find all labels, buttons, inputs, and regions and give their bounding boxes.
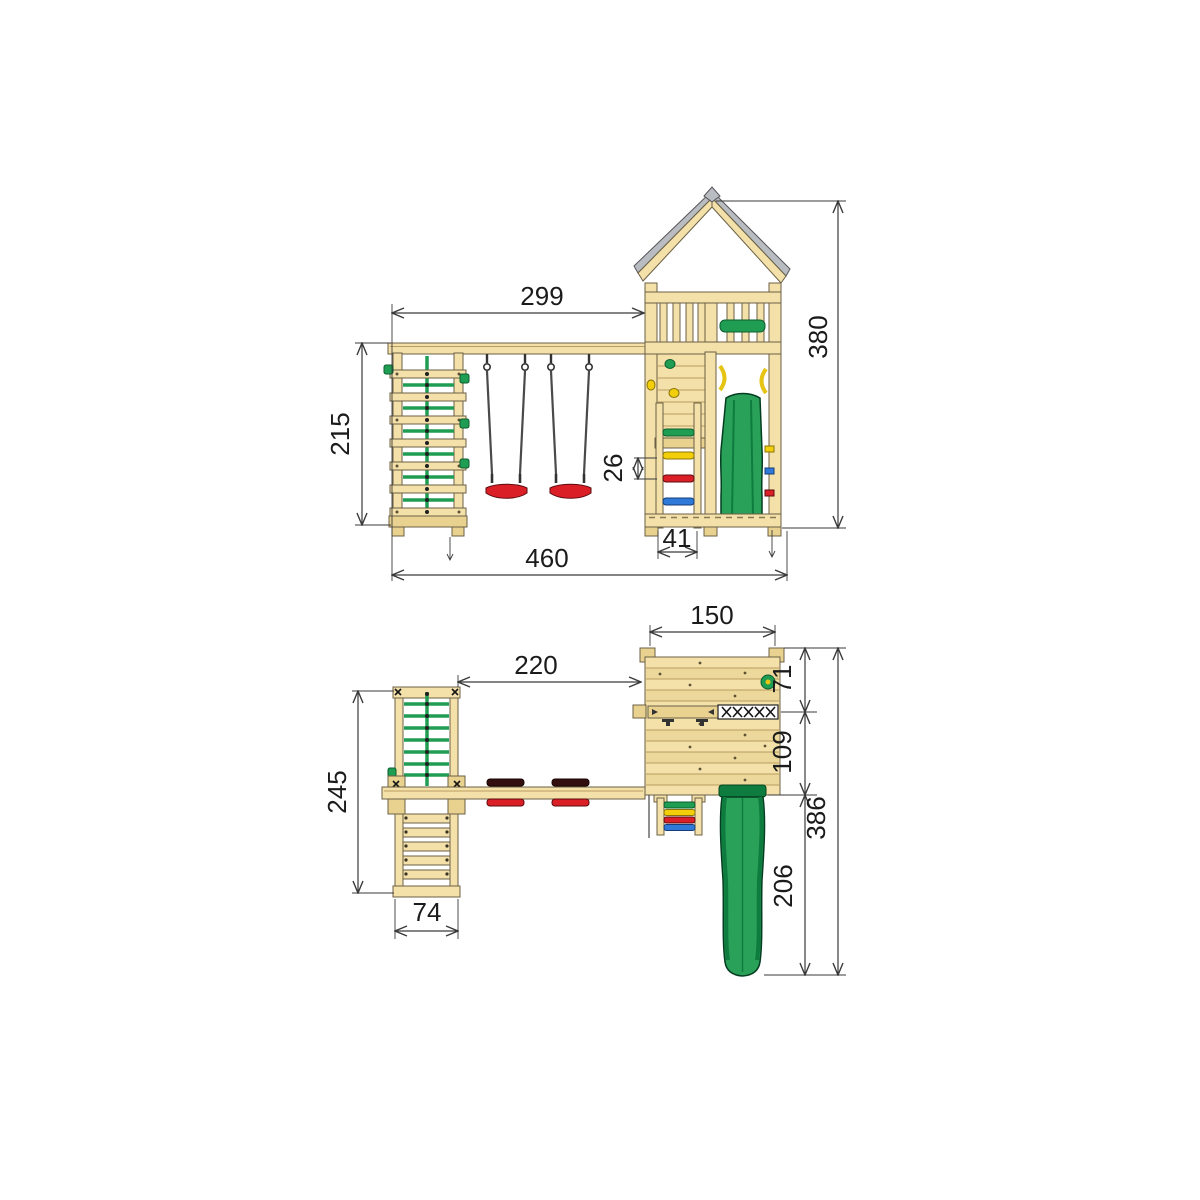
dim-label-460: 460 bbox=[525, 543, 568, 573]
swing-seat-plan bbox=[552, 799, 589, 806]
tower-post bbox=[645, 283, 657, 528]
entry-handle bbox=[720, 366, 725, 390]
swing-beam-plan bbox=[382, 779, 645, 806]
swing-seat bbox=[486, 484, 527, 498]
dim-label-74: 74 bbox=[413, 897, 442, 927]
ladder-rung-yellow bbox=[663, 452, 694, 459]
playset-dimension-diagram: 299 460 215 380 26 41 bbox=[0, 0, 1200, 1200]
rear-rung-mark bbox=[765, 490, 774, 496]
plan-view: 150 220 245 74 71 109 206 386 bbox=[322, 600, 846, 976]
swing-set-side bbox=[484, 354, 592, 498]
net-hook bbox=[460, 419, 469, 428]
diagram-canvas: 299 460 215 380 26 41 bbox=[0, 0, 1200, 1200]
slide-side bbox=[721, 394, 763, 523]
tower-mid-post bbox=[705, 352, 716, 528]
dim-label-215: 215 bbox=[325, 412, 355, 455]
access-ladder-plan bbox=[649, 795, 705, 838]
ladder-rung-blue bbox=[663, 498, 694, 505]
dim-label-150: 150 bbox=[690, 600, 733, 630]
play-tower-side bbox=[634, 187, 790, 557]
ladder-rung-green bbox=[663, 429, 694, 436]
dim-label-109: 109 bbox=[767, 730, 797, 773]
climbing-hold bbox=[669, 389, 679, 398]
dim-label-299: 299 bbox=[520, 281, 563, 311]
dim-label-71: 71 bbox=[767, 665, 797, 694]
dim-label-26: 26 bbox=[598, 454, 628, 483]
swing-seat bbox=[550, 484, 591, 498]
slide-plan bbox=[719, 785, 766, 976]
swing-seat-plan bbox=[487, 799, 524, 806]
climbing-hold bbox=[665, 360, 675, 369]
dim-label-206: 206 bbox=[768, 864, 798, 907]
swing-seat-plan bbox=[487, 779, 524, 786]
dim-label-386: 386 bbox=[801, 796, 831, 839]
rope-lattice-plan bbox=[718, 705, 778, 719]
ladder-rung-red bbox=[663, 475, 694, 482]
slide-collar bbox=[719, 785, 766, 797]
frame-ladder-plan bbox=[403, 814, 450, 879]
entry-handle bbox=[762, 369, 767, 393]
green-grab-bar bbox=[720, 320, 765, 332]
side-bracket bbox=[633, 705, 646, 718]
swing-beam bbox=[388, 343, 648, 354]
dim-label-41: 41 bbox=[663, 523, 692, 553]
rear-rung-mark bbox=[765, 468, 774, 474]
climbing-frame-side bbox=[384, 353, 469, 560]
divider-bar bbox=[648, 706, 718, 718]
dim-label-380: 380 bbox=[803, 315, 833, 358]
tower-plan bbox=[633, 648, 784, 795]
net-hook bbox=[460, 459, 469, 468]
rear-rung-mark bbox=[765, 446, 774, 452]
climbing-hold bbox=[647, 380, 655, 390]
net-hook bbox=[460, 374, 469, 383]
hanger-rings bbox=[484, 364, 592, 370]
side-view: 299 460 215 380 26 41 bbox=[325, 187, 846, 581]
dim-label-220: 220 bbox=[514, 650, 557, 680]
dim-label-245: 245 bbox=[322, 770, 352, 813]
swing-ropes bbox=[487, 371, 589, 474]
swing-seat-plan bbox=[552, 779, 589, 786]
swing-hangers bbox=[487, 354, 589, 363]
rope-fittings bbox=[492, 474, 584, 483]
